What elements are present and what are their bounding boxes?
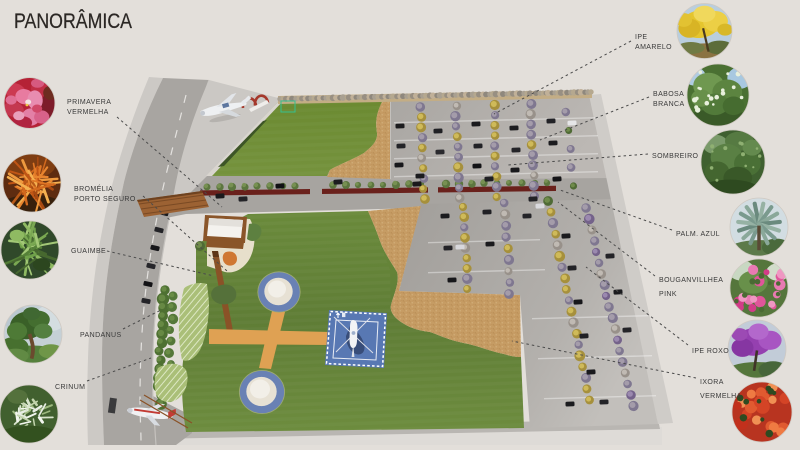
svg-text:GUAIMBE: GUAIMBE	[71, 248, 106, 255]
svg-text:IPE: IPE	[635, 34, 647, 41]
svg-text:VERMELHA: VERMELHA	[700, 393, 742, 400]
svg-text:PANDANUS: PANDANUS	[80, 332, 122, 339]
svg-text:CRINUM: CRINUM	[55, 384, 85, 391]
svg-text:PALM. AZUL: PALM. AZUL	[676, 231, 720, 238]
svg-text:SOMBREIRO: SOMBREIRO	[652, 153, 699, 160]
svg-text:PANORÂMICA: PANORÂMICA	[14, 8, 133, 33]
svg-text:PINK: PINK	[659, 291, 677, 298]
svg-text:BABOSA: BABOSA	[653, 91, 684, 98]
svg-text:PRIMAVERA: PRIMAVERA	[67, 99, 111, 106]
svg-text:IPE ROXO: IPE ROXO	[692, 348, 729, 355]
svg-text:IXORA: IXORA	[700, 379, 724, 386]
svg-text:PORTO SEGURO: PORTO SEGURO	[74, 196, 136, 203]
svg-text:BOUGANVILLHEA: BOUGANVILLHEA	[659, 277, 723, 284]
svg-text:AMARELO: AMARELO	[635, 44, 672, 51]
svg-text:VERMELHA: VERMELHA	[67, 109, 109, 116]
svg-text:BRANCA: BRANCA	[653, 101, 685, 108]
svg-text:BROMÉLIA: BROMÉLIA	[74, 184, 113, 193]
